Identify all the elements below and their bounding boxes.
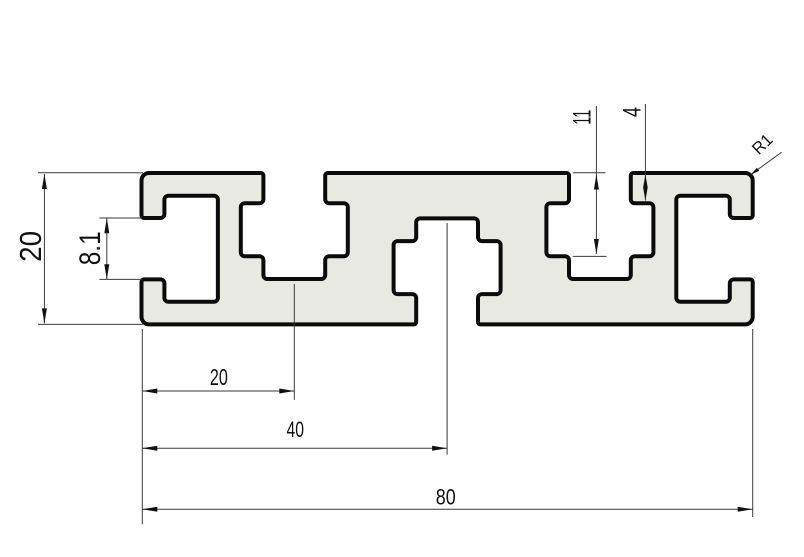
svg-text:4: 4: [619, 107, 647, 117]
svg-text:20: 20: [210, 364, 228, 390]
svg-text:11: 11: [569, 110, 597, 125]
svg-text:40: 40: [287, 417, 305, 442]
svg-text:R1: R1: [748, 130, 776, 158]
svg-text:80: 80: [436, 484, 456, 509]
svg-text:8.1: 8.1: [74, 231, 107, 265]
svg-text:20: 20: [13, 231, 48, 262]
